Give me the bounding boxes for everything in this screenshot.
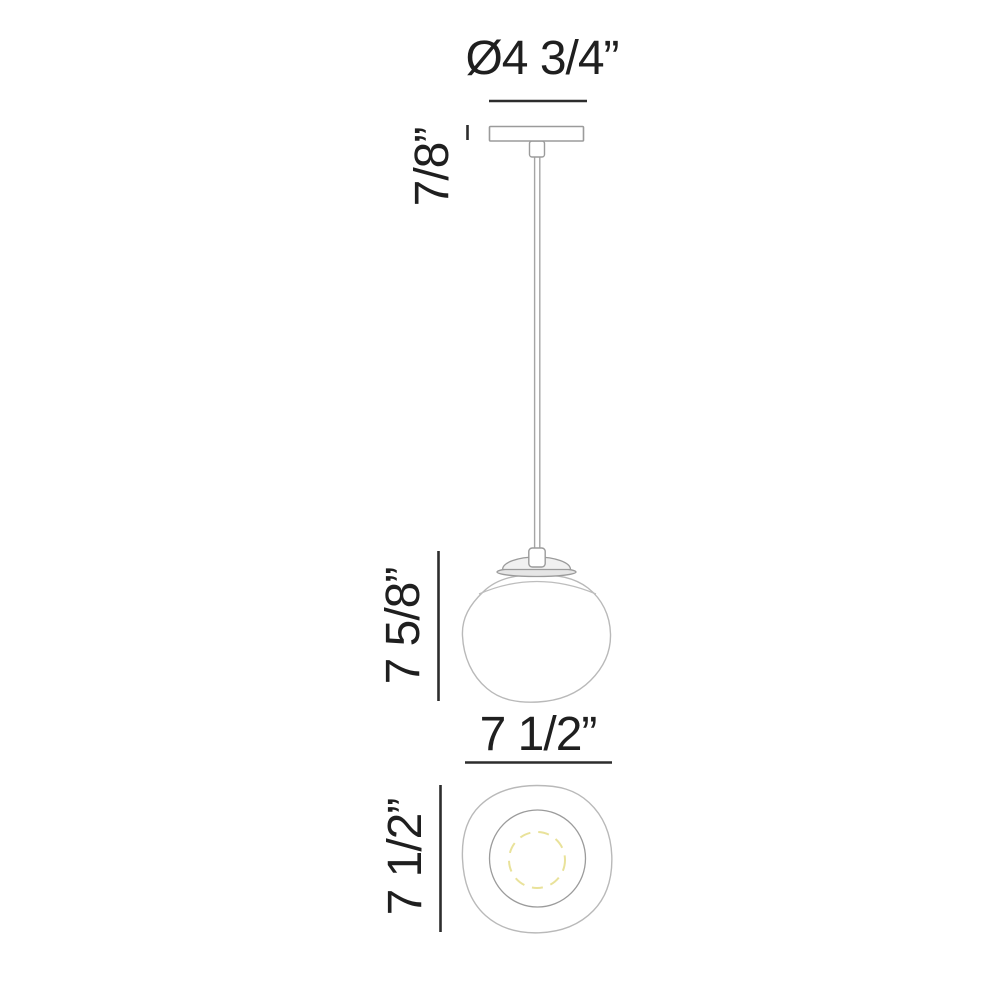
- canopy-connector: [530, 141, 545, 157]
- glass-globe-outline: [462, 575, 610, 703]
- ceiling-canopy: [490, 127, 584, 142]
- fixture-drawing: [0, 0, 1000, 1000]
- front-elevation: [462, 127, 610, 703]
- bottom-view: [462, 786, 611, 933]
- cord-socket: [529, 548, 545, 567]
- shade-width-label: 7 1/2”: [388, 709, 688, 761]
- suspension-cord: [535, 157, 540, 552]
- fixture-height-label: 7 5/8”: [378, 526, 430, 726]
- shade-outline-bottom-view: [462, 786, 611, 933]
- shade-depth-label: 7 1/2”: [380, 757, 432, 957]
- canopy-diameter-label: Ø4 3/4”: [377, 33, 707, 85]
- canopy-height-label: 7/8”: [407, 87, 459, 247]
- diagram-canvas: Ø4 3/4” 7/8” 7 5/8” 7 1/2” 7 1/2”: [0, 0, 1000, 1000]
